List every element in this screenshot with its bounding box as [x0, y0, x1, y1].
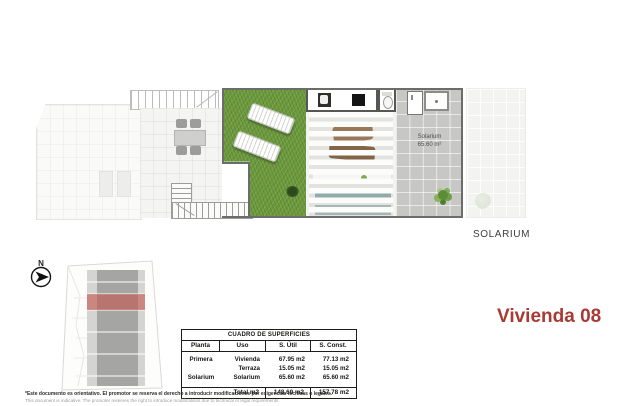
plan-sheet: Solarium 65.60 m² SOLARIUM N: [0, 0, 620, 406]
table-cell: 15.05 m2: [311, 364, 355, 373]
table-cell: Primera: [182, 355, 220, 364]
building-core: [97, 270, 138, 386]
solarium-tiled-area: Solarium 65.60 m²: [396, 88, 463, 218]
plan-caption: SOLARIUM: [473, 229, 530, 240]
col-header: Planta: [182, 341, 220, 351]
solarium-label-line2: 65.60 m²: [396, 142, 463, 150]
shower-door: [407, 91, 423, 115]
disclaimer: *Este documento es orientativo. El promo…: [25, 391, 365, 403]
col-header: Uso: [220, 341, 266, 351]
highlighted-unit: [87, 294, 145, 310]
plant: [438, 190, 448, 200]
faded-furniture: [99, 171, 113, 197]
wall: [248, 162, 250, 218]
north-label: N: [38, 259, 44, 268]
stair-diagonal: [176, 203, 195, 216]
table-cell: 67.95 m2: [266, 355, 311, 364]
table-cell: Solarium: [182, 373, 220, 382]
wall: [222, 162, 250, 164]
sun-lounger: [232, 130, 281, 162]
table-cell: 77.13 m2: [311, 355, 355, 364]
stairs-hatch-top: [130, 90, 219, 110]
pergola-area: [306, 112, 396, 218]
wall: [222, 216, 463, 218]
table-cell: 65.60 m2: [266, 373, 311, 382]
chair: [190, 119, 201, 128]
pergola-slats: [309, 112, 393, 218]
toilet-room: [378, 88, 396, 112]
wall: [222, 88, 463, 90]
sink-icon: [318, 93, 331, 107]
chair: [190, 146, 201, 155]
chair: [176, 119, 187, 128]
shower-tray: [424, 91, 449, 111]
neighbour-unit-right: [466, 88, 526, 218]
faded-furniture: [117, 171, 131, 197]
sun-lounger: [246, 102, 295, 134]
surface-table-body: Primera Vivienda 67.95 m2 77.13 m2 Terra…: [182, 352, 356, 385]
site-plan: N: [28, 256, 168, 394]
solarium-area-label: Solarium 65.60 m²: [396, 134, 463, 149]
outdoor-kitchen: [306, 88, 378, 112]
col-header: S. Útil: [266, 341, 311, 351]
toilet-icon: [383, 96, 393, 109]
solarium-label-line1: Solarium: [396, 134, 463, 142]
stair-diagonal: [196, 91, 217, 107]
unit-title: Vivienda 08: [497, 306, 601, 328]
chair: [176, 146, 187, 155]
table-cell: [182, 364, 220, 373]
surface-table-header: Planta Uso S. Útil S. Const.: [182, 341, 356, 352]
lawn-area: [222, 90, 312, 218]
surface-table-title: CUADRO DE SUPERFICIES: [182, 330, 356, 341]
outdoor-table: [174, 130, 206, 146]
disclaimer-es: *Este documento es orientativo. El promo…: [25, 391, 365, 397]
wall: [222, 88, 224, 164]
col-header: S. Const.: [311, 341, 355, 351]
plant: [286, 186, 299, 197]
surface-table: CUADRO DE SUPERFICIES Planta Uso S. Útil…: [181, 329, 357, 399]
wall: [461, 88, 463, 218]
table-cell: Terraza: [220, 364, 266, 373]
neighbour-unit-left: [36, 104, 142, 220]
table-cell: Solarium: [220, 373, 266, 382]
table-cell: Vivienda: [220, 355, 266, 364]
table-cell: 65.60 m2: [311, 373, 355, 382]
faded-plant: [475, 193, 491, 209]
hob-icon: [352, 94, 365, 106]
table-cell: 15.05 m2: [266, 364, 311, 373]
disclaimer-en: This document is indicative. The promote…: [25, 398, 365, 403]
